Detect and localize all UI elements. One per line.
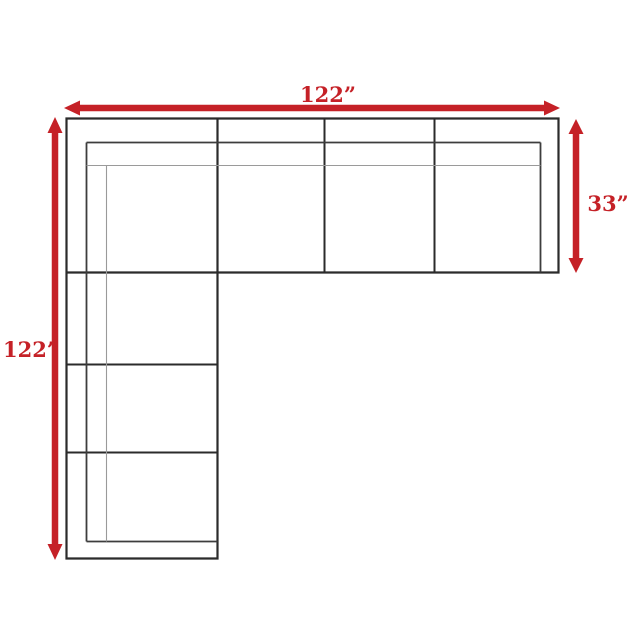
arrow-head-down-icon bbox=[48, 544, 63, 560]
dimension-label-right-depth: 33” bbox=[582, 193, 634, 214]
arrow-head-left-icon bbox=[64, 101, 80, 116]
arrow-head-up-icon bbox=[48, 117, 63, 133]
dimension-diagram-page: 122” 122” 33” bbox=[0, 0, 640, 640]
dimension-label-top-width: 122” bbox=[288, 84, 368, 105]
dimension-label-left-depth: 122” bbox=[3, 339, 53, 360]
arrow-head-right-icon bbox=[544, 101, 560, 116]
arrow-head-down-icon bbox=[569, 258, 584, 273]
sofa-body bbox=[67, 119, 559, 559]
arrow-head-up-icon bbox=[569, 119, 584, 134]
sofa-outer-outline bbox=[67, 119, 559, 559]
